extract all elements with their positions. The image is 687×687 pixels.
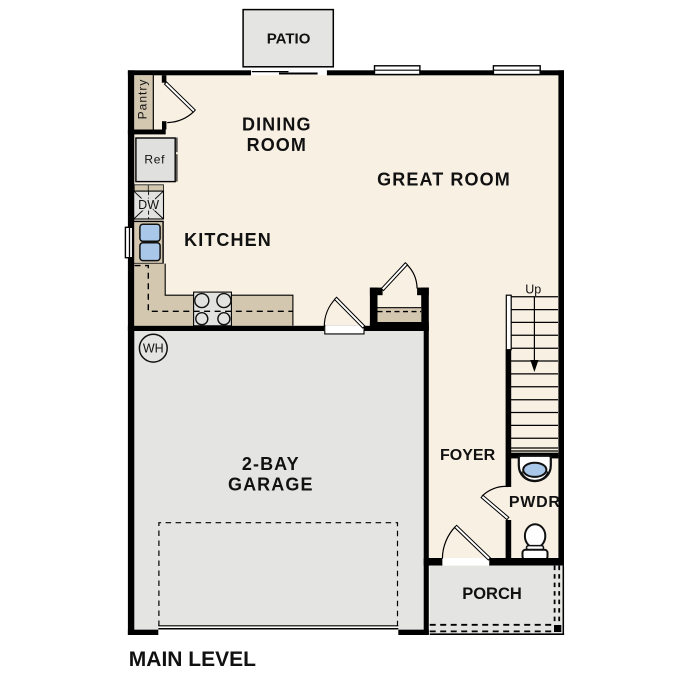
svg-text:Up: Up bbox=[525, 283, 541, 297]
svg-text:GREAT ROOM: GREAT ROOM bbox=[377, 170, 511, 190]
svg-text:DINING: DINING bbox=[242, 114, 312, 134]
svg-text:DW: DW bbox=[138, 198, 159, 212]
svg-text:GARAGE: GARAGE bbox=[228, 475, 314, 495]
svg-text:ROOM: ROOM bbox=[247, 135, 307, 155]
svg-text:PWDR: PWDR bbox=[509, 494, 561, 511]
svg-text:KITCHEN: KITCHEN bbox=[184, 230, 272, 250]
svg-text:PORCH: PORCH bbox=[462, 585, 522, 603]
svg-text:Ref: Ref bbox=[144, 153, 165, 167]
svg-text:PATIO: PATIO bbox=[267, 30, 311, 47]
svg-text:FOYER: FOYER bbox=[440, 447, 496, 464]
svg-text:WH: WH bbox=[143, 342, 164, 356]
svg-text:2-BAY: 2-BAY bbox=[242, 454, 300, 474]
svg-text:MAIN LEVEL: MAIN LEVEL bbox=[129, 648, 256, 671]
svg-text:Pantry: Pantry bbox=[135, 79, 149, 120]
